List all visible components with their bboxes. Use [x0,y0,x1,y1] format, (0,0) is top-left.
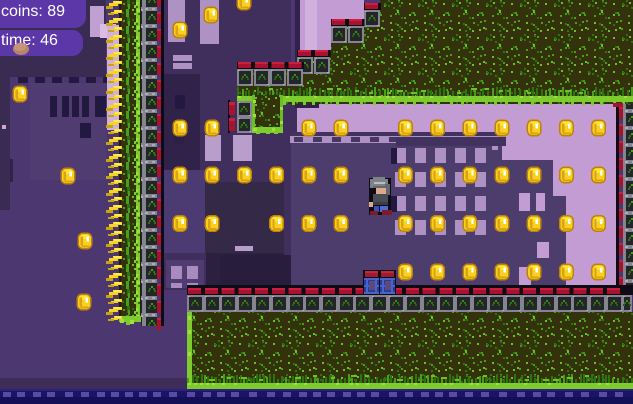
svg-text:coins: 89: coins: 89 [1,3,65,20]
svg-text:time: 46: time: 46 [1,32,58,49]
